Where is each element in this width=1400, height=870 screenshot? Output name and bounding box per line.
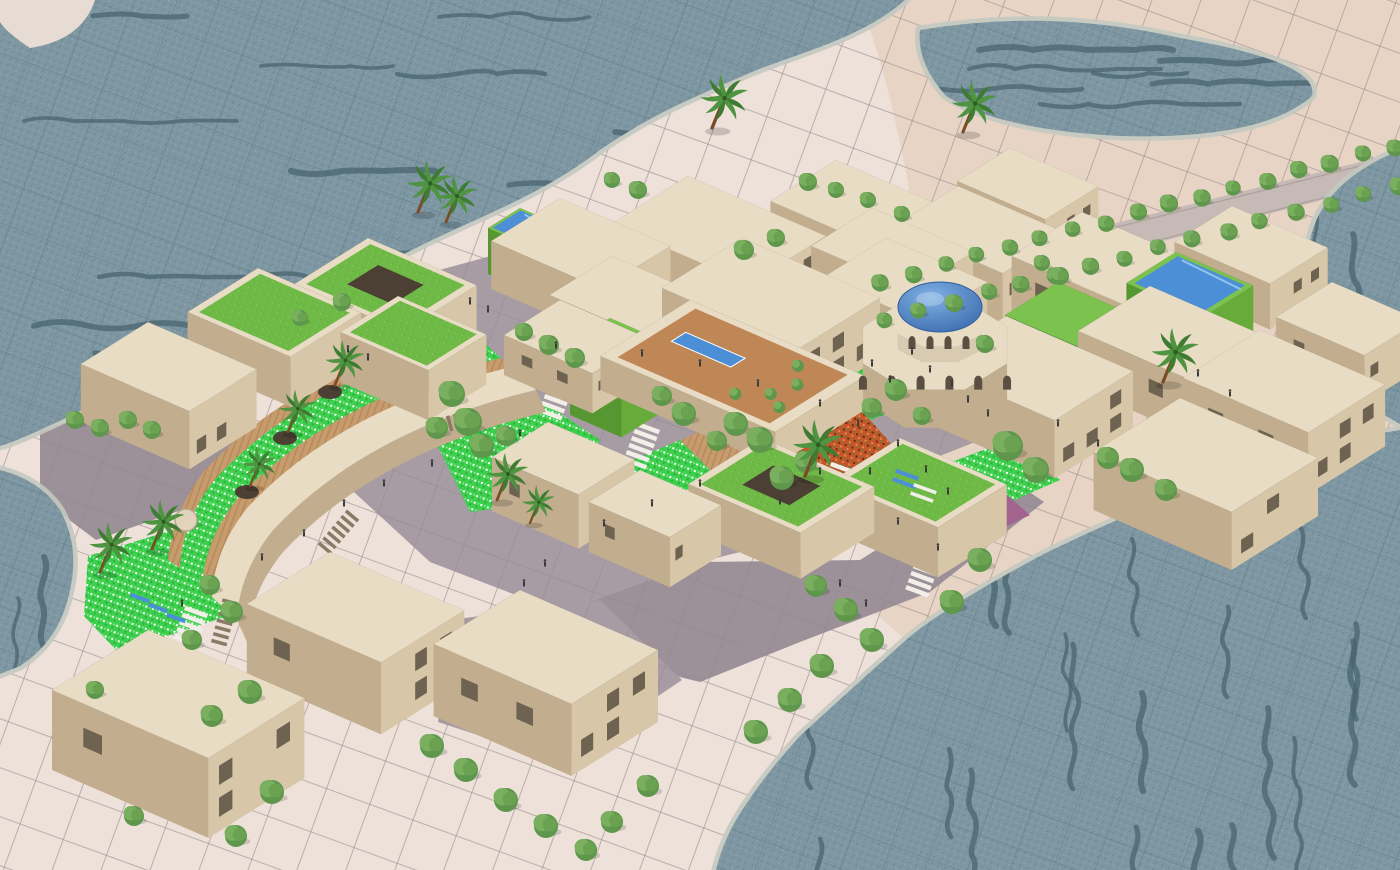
person xyxy=(487,305,490,312)
drum-arch xyxy=(909,336,916,349)
person xyxy=(699,359,702,366)
person xyxy=(929,365,932,372)
person xyxy=(651,499,654,506)
person xyxy=(367,353,370,360)
person xyxy=(699,479,702,486)
person xyxy=(347,345,350,352)
person xyxy=(869,467,872,474)
masterplan-scene-canvas xyxy=(0,0,1400,870)
person xyxy=(757,379,760,386)
person xyxy=(937,543,940,550)
person xyxy=(889,375,892,382)
person xyxy=(343,499,346,506)
person xyxy=(839,579,842,586)
person xyxy=(523,579,526,586)
person xyxy=(1229,389,1232,396)
person xyxy=(897,439,900,446)
person xyxy=(857,419,860,426)
person xyxy=(1197,369,1200,376)
person xyxy=(1097,439,1100,446)
person xyxy=(967,395,970,402)
masterplan-render xyxy=(0,0,1400,870)
drum-arch xyxy=(927,336,934,349)
person xyxy=(819,399,822,406)
person xyxy=(911,347,914,354)
person xyxy=(947,487,950,494)
person xyxy=(779,497,782,504)
person xyxy=(897,517,900,524)
person xyxy=(519,429,522,436)
person xyxy=(544,559,547,566)
drum-arch xyxy=(945,336,952,349)
person xyxy=(865,599,868,606)
person xyxy=(383,479,386,486)
arcade-arch xyxy=(917,376,925,390)
person xyxy=(261,553,264,560)
person xyxy=(819,467,822,474)
person xyxy=(303,529,306,536)
person xyxy=(555,341,558,348)
arcade-arch xyxy=(974,376,982,390)
arcade-arch xyxy=(1003,376,1011,390)
person xyxy=(925,465,928,472)
person xyxy=(871,359,874,366)
person xyxy=(641,349,644,356)
person xyxy=(469,297,472,304)
drum-arch xyxy=(963,336,970,349)
person xyxy=(987,409,990,416)
person xyxy=(1057,419,1060,426)
person xyxy=(431,459,434,466)
person xyxy=(603,519,606,526)
person xyxy=(951,379,954,386)
arcade-arch xyxy=(859,376,867,390)
person xyxy=(181,599,184,606)
